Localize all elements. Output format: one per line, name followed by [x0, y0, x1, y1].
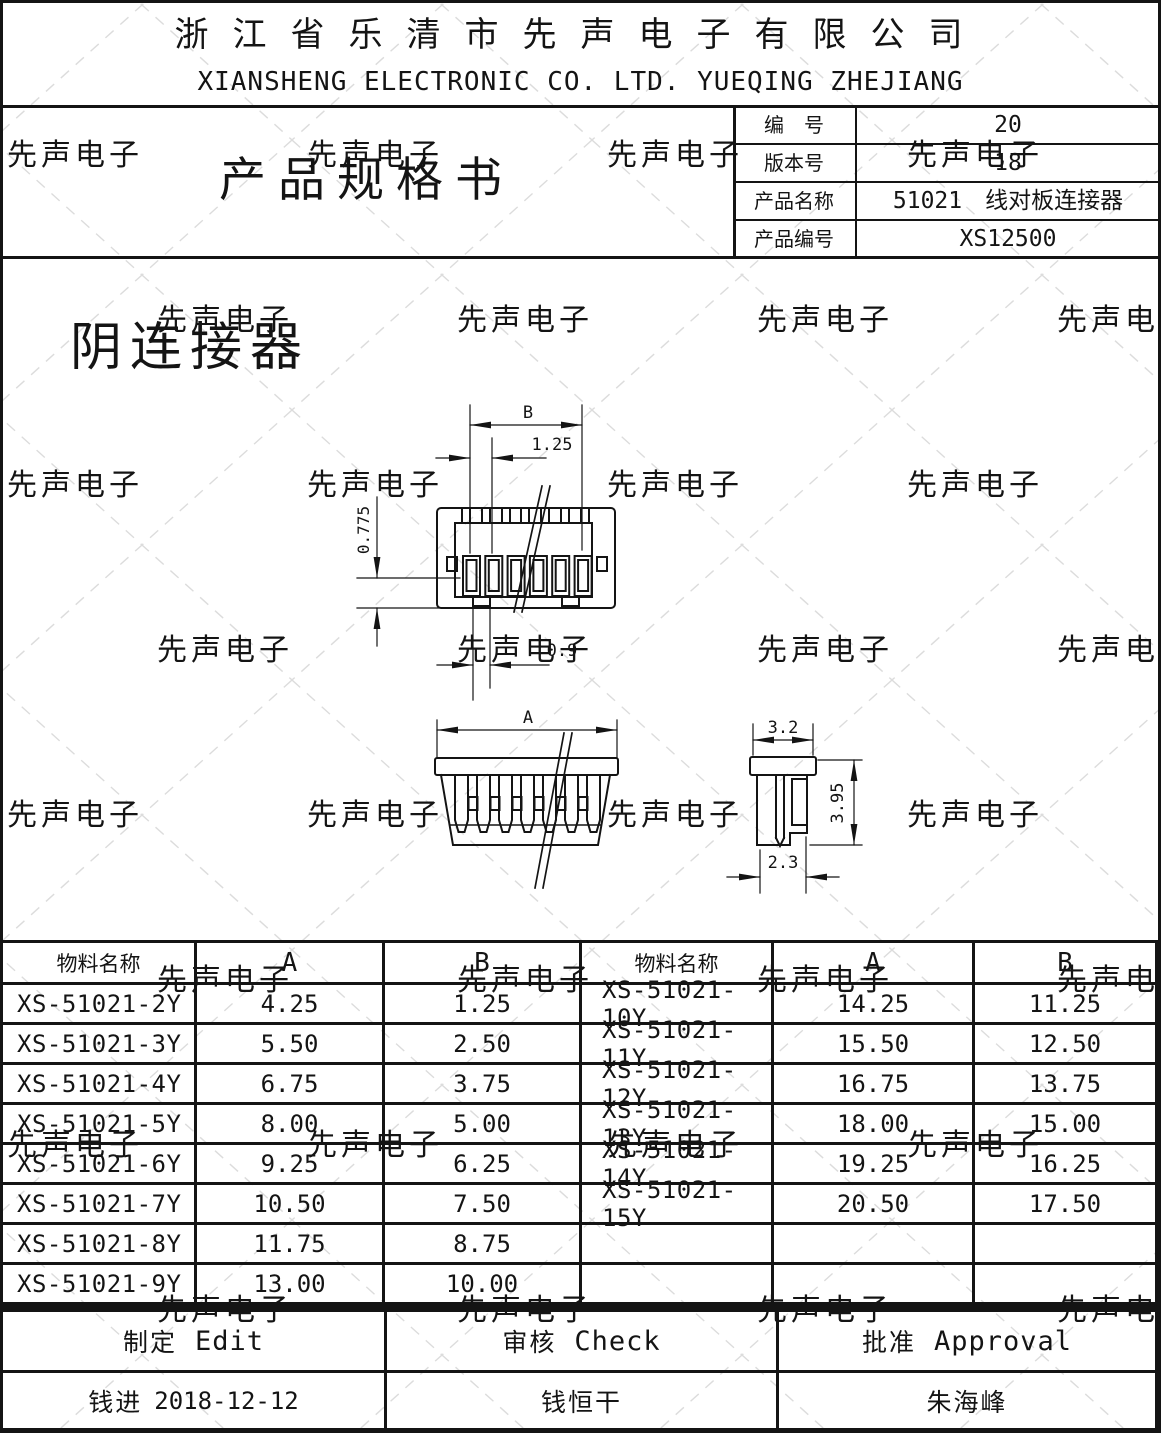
dim-b-value: 2.50: [385, 1025, 582, 1065]
dim-b-value: 6.25: [385, 1145, 582, 1185]
col-header-a-left: A: [197, 943, 385, 985]
dim-b-value: 11.25: [975, 985, 1158, 1025]
part-number: XS-51021-4Y: [3, 1065, 197, 1105]
col-header-material-name-left: 物料名称: [3, 943, 197, 985]
signoff-check: 审核 Check: [387, 1312, 779, 1373]
signoff-check-label-en: Check: [574, 1326, 660, 1357]
dim-label-depth: 0.775: [354, 506, 373, 554]
dim-a-value: 14.25: [774, 985, 975, 1025]
spec-sheet-page: { "watermark": { "text": "先声电子" }, "head…: [0, 0, 1161, 1433]
approver-name: 朱海峰: [926, 1383, 1007, 1419]
side-view: [750, 757, 816, 846]
part-number: XS-51021-5Y: [3, 1105, 197, 1145]
dim-b-value: 15.00: [975, 1105, 1158, 1145]
dim-label-side-height: 3.95: [828, 783, 848, 824]
empty-cell: [774, 1265, 975, 1305]
dim-label-side-base: 2.3: [768, 853, 799, 873]
header-divider: [0, 105, 1161, 108]
dim-b-value: 3.75: [385, 1065, 582, 1105]
signoff-editor-name: 钱进 2018-12-12: [3, 1373, 387, 1431]
dim-a-value: 8.00: [197, 1105, 385, 1145]
empty-cell: [975, 1265, 1158, 1305]
part-number: XS-51021-9Y: [3, 1265, 197, 1305]
empty-cell: [975, 1225, 1158, 1265]
signoff-edit: 制定 Edit: [3, 1312, 387, 1373]
dim-label-slot: 0.9: [547, 641, 578, 661]
signoff-approval-label-en: Approval: [934, 1326, 1072, 1357]
bottom-view: [435, 733, 618, 888]
dim-a-value: 6.75: [197, 1065, 385, 1105]
dim-a-value: 16.75: [774, 1065, 975, 1105]
part-number: XS-51021-6Y: [3, 1145, 197, 1185]
signoff-check-label-cn: 审核: [502, 1323, 556, 1359]
dim-a-value: 15.50: [774, 1025, 975, 1065]
col-header-a-right: A: [774, 943, 975, 985]
part-number: XS-51021-7Y: [3, 1185, 197, 1225]
signoff-edit-label-en: Edit: [195, 1326, 264, 1357]
signoff-table: 制定 Edit 审核 Check 批准 Approval 钱进 2018-12-…: [0, 1308, 1161, 1433]
part-number: XS-51021-3Y: [3, 1025, 197, 1065]
dim-a-value: 13.00: [197, 1265, 385, 1305]
dim-label-b: B: [523, 403, 533, 423]
empty-cell: [582, 1265, 774, 1305]
dim-b-value: 16.25: [975, 1145, 1158, 1185]
edit-date: 2018-12-12: [154, 1387, 299, 1415]
titleblock-hline-3: [733, 219, 1161, 221]
dim-b-value: 1.25: [385, 985, 582, 1025]
dim-a-value: 9.25: [197, 1145, 385, 1185]
part-number: XS-51021-8Y: [3, 1225, 197, 1265]
dim-a-value: 5.50: [197, 1025, 385, 1065]
dim-a-value: 20.50: [774, 1185, 975, 1225]
dim-a-value: 4.25: [197, 985, 385, 1025]
col-header-b-right: B: [975, 943, 1158, 985]
dim-a-value: 18.00: [774, 1105, 975, 1145]
dim-b-value: 13.75: [975, 1065, 1158, 1105]
part-number: XS-51021-2Y: [3, 985, 197, 1025]
dim-a-value: 19.25: [774, 1145, 975, 1185]
titleblock-hline-2: [733, 181, 1161, 183]
empty-cell: [582, 1225, 774, 1265]
titleblock-hline-1: [733, 143, 1161, 145]
dim-b-value: 8.75: [385, 1225, 582, 1265]
dim-b-value: 5.00: [385, 1105, 582, 1145]
signoff-edit-label-cn: 制定: [123, 1323, 177, 1359]
signoff-checker-name: 钱恒干: [387, 1373, 779, 1431]
dim-a-value: 11.75: [197, 1225, 385, 1265]
col-header-b-left: B: [385, 943, 582, 985]
titleblock-bottom-divider: [0, 256, 1161, 259]
front-view: [437, 486, 615, 612]
editor-name: 钱进: [88, 1383, 142, 1419]
dim-b-value: 17.50: [975, 1185, 1158, 1225]
dim-b-value: 7.50: [385, 1185, 582, 1225]
parts-table: 物料名称 A B 物料名称 A B XS-51021-2Y 4.25 1.25 …: [0, 940, 1161, 1308]
dim-label-pitch: 1.25: [532, 435, 573, 455]
signoff-approver-name: 朱海峰: [779, 1373, 1158, 1431]
dim-a-value: 10.50: [197, 1185, 385, 1225]
dim-b-value: 12.50: [975, 1025, 1158, 1065]
signoff-approval-label-cn: 批准: [862, 1323, 916, 1359]
checker-name: 钱恒干: [541, 1383, 622, 1419]
dim-label-a: A: [523, 708, 533, 728]
part-number: XS-51021-15Y: [582, 1185, 774, 1225]
dim-label-side-width: 3.2: [768, 718, 799, 738]
empty-cell: [774, 1225, 975, 1265]
dim-b-value: 10.00: [385, 1265, 582, 1305]
signoff-approval: 批准 Approval: [779, 1312, 1158, 1373]
